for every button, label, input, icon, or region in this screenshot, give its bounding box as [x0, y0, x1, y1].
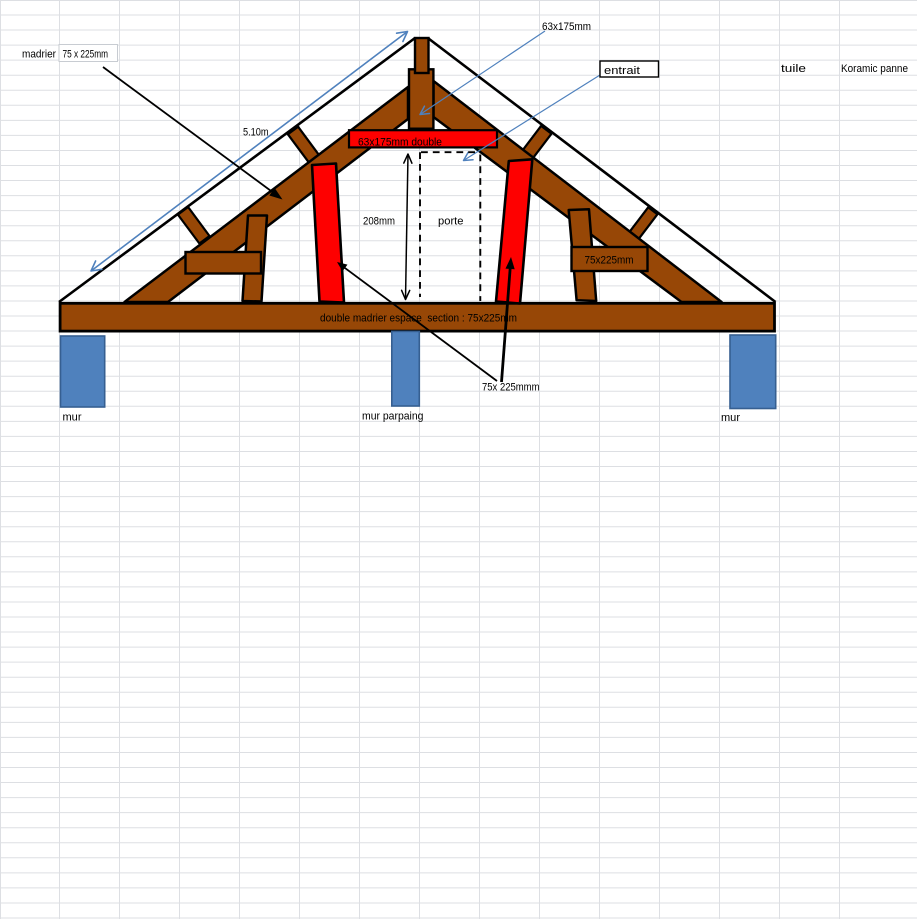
svg-text:75x 225mmm: 75x 225mmm [482, 382, 540, 394]
svg-text:75x225mm: 75x225mm [585, 255, 634, 267]
svg-text:mur: mur [63, 412, 82, 424]
svg-text:entrait: entrait [604, 65, 640, 77]
svg-text:mur parpaing: mur parpaing [362, 411, 424, 423]
svg-text:madrier: madrier [22, 49, 56, 61]
svg-text:porte: porte [438, 216, 464, 228]
svg-text:mur: mur [721, 412, 740, 424]
svg-text:double madrier espace section: double madrier espace section : 75x225mm [320, 313, 517, 325]
svg-text:75 x 225mm: 75 x 225mm [63, 49, 109, 61]
svg-text:63x175mm double: 63x175mm double [358, 137, 442, 149]
svg-text:5.10m: 5.10m [243, 127, 269, 139]
svg-text:63x175mm: 63x175mm [542, 21, 591, 33]
svg-text:tuile: tuile [781, 63, 806, 75]
svg-text:Koramic panne: Koramic panne [841, 63, 908, 75]
svg-text:208mm: 208mm [363, 216, 395, 228]
